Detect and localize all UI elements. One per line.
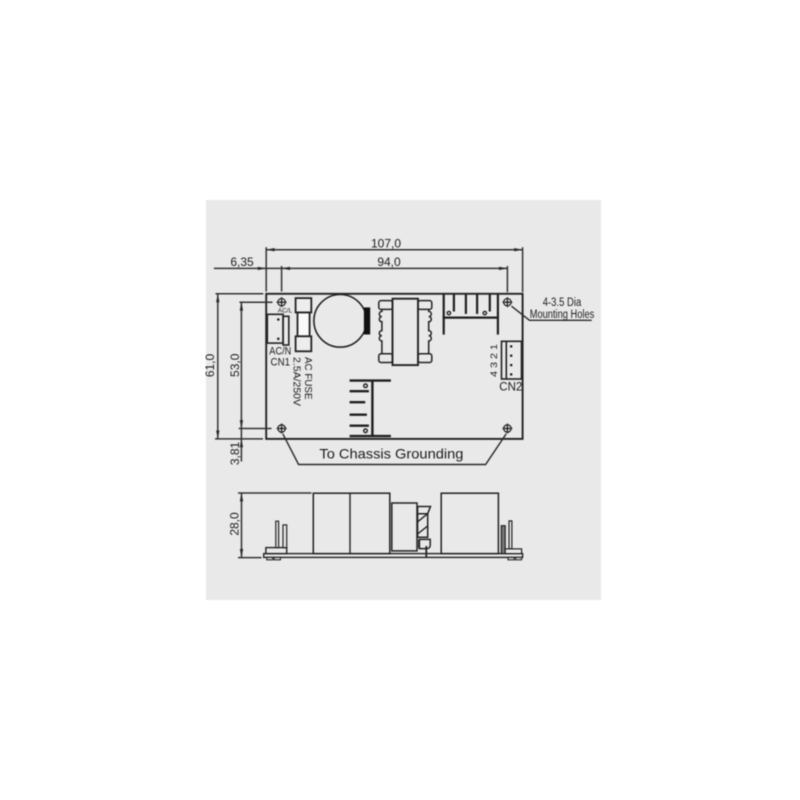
svg-text:6,35: 6,35	[230, 255, 254, 269]
svg-text:61,0: 61,0	[203, 353, 217, 377]
svg-text:4-3.5 Dia: 4-3.5 Dia	[543, 297, 582, 309]
svg-text:107,0: 107,0	[371, 236, 401, 250]
svg-text:To Chassis Grounding: To Chassis Grounding	[319, 446, 463, 462]
svg-text:28,0: 28,0	[228, 512, 242, 536]
svg-text:Mounting Holes: Mounting Holes	[530, 309, 595, 321]
svg-text:CN1: CN1	[271, 357, 291, 369]
svg-text:2.5A/250V: 2.5A/250V	[291, 357, 303, 406]
svg-text:3,81: 3,81	[228, 441, 242, 465]
svg-text:CN2: CN2	[499, 380, 522, 394]
svg-text:AC/L: AC/L	[278, 307, 293, 314]
svg-text:AC/N: AC/N	[269, 345, 291, 357]
svg-text:53,0: 53,0	[228, 353, 242, 377]
svg-text:94,0: 94,0	[377, 255, 401, 269]
svg-text:4 3 2 1: 4 3 2 1	[489, 344, 500, 377]
